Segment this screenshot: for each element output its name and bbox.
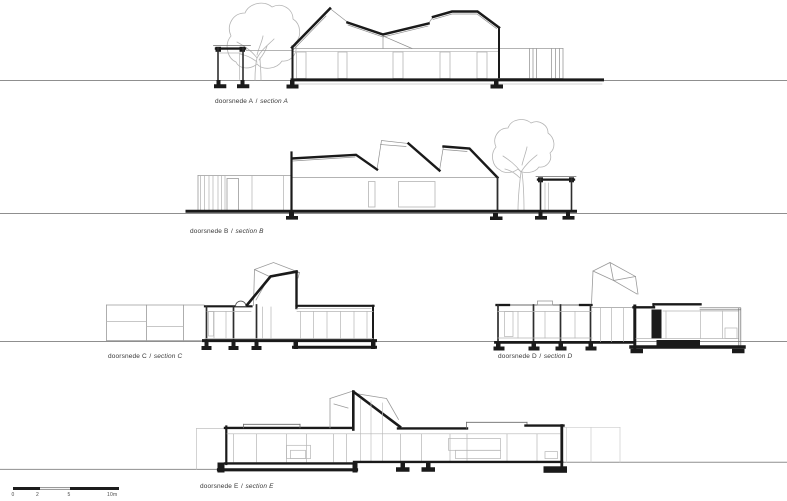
main-building-a bbox=[287, 9, 603, 89]
left-wing-b bbox=[198, 176, 291, 212]
section-a-label-en: section A bbox=[260, 98, 288, 105]
pitched-roof-c bbox=[254, 263, 300, 306]
section-a-label: doorsnede A/section A bbox=[215, 98, 288, 106]
dark-floor-strip bbox=[657, 340, 701, 346]
label-separator: / bbox=[539, 353, 541, 360]
scale-bar-segment bbox=[70, 487, 119, 490]
main-building-c bbox=[202, 263, 376, 351]
section-e-drawing bbox=[197, 392, 621, 473]
left-building-d bbox=[494, 301, 634, 351]
outbuilding-a bbox=[214, 45, 251, 88]
section-d-label-nl: doorsnede D bbox=[498, 353, 537, 360]
section-a-drawing bbox=[214, 3, 603, 88]
dark-core-wall bbox=[652, 310, 662, 340]
main-building-b bbox=[292, 141, 499, 212]
section-a-label-nl: doorsnede A bbox=[215, 98, 253, 105]
scale-tick-5: 5 bbox=[68, 492, 71, 498]
roof-monitor bbox=[330, 392, 400, 462]
left-wing-c bbox=[107, 305, 205, 341]
section-e-label-en: section E bbox=[245, 483, 273, 490]
scale-bar-segment bbox=[40, 487, 71, 490]
label-separator: / bbox=[231, 228, 233, 235]
sections-drawing bbox=[0, 0, 787, 501]
section-d-drawing bbox=[494, 263, 745, 354]
section-d-label-en: section D bbox=[544, 353, 572, 360]
section-d-label: doorsnede D/section D bbox=[498, 353, 572, 361]
scale-tick-2: 2 bbox=[36, 492, 39, 498]
section-e-label: doorsnede E/section E bbox=[200, 483, 274, 491]
architectural-sections-sheet: doorsnede A/section A doorsnede B/sectio… bbox=[0, 0, 787, 501]
label-separator: / bbox=[241, 483, 243, 490]
section-c-label-en: section C bbox=[154, 353, 182, 360]
roof-vault-bump bbox=[236, 301, 247, 306]
section-c-label-nl: doorsnede C bbox=[108, 353, 147, 360]
section-e-label-nl: doorsnede E bbox=[200, 483, 239, 490]
label-separator: / bbox=[149, 353, 151, 360]
section-c-label: doorsnede C/section C bbox=[108, 353, 182, 361]
section-c-drawing bbox=[107, 263, 376, 351]
roof-vent bbox=[538, 301, 553, 305]
rooflight-upstand-right bbox=[467, 422, 528, 428]
section-b-label-en: section B bbox=[235, 228, 263, 235]
label-separator: / bbox=[256, 98, 258, 105]
main-building-e bbox=[218, 392, 568, 473]
tree-icon bbox=[227, 3, 300, 80]
scale-tick-10m: 10m bbox=[107, 492, 117, 498]
right-building-d bbox=[631, 304, 745, 353]
pitched-roof-d bbox=[592, 263, 639, 342]
scale-tick-0: 0 bbox=[12, 492, 15, 498]
low-wing-a bbox=[498, 49, 563, 79]
right-structure-e bbox=[563, 427, 620, 462]
section-b-label: doorsnede B/section B bbox=[190, 228, 264, 236]
section-b-drawing bbox=[187, 120, 576, 220]
section-b-label-nl: doorsnede B bbox=[190, 228, 229, 235]
scale-bar-segment bbox=[13, 487, 40, 490]
